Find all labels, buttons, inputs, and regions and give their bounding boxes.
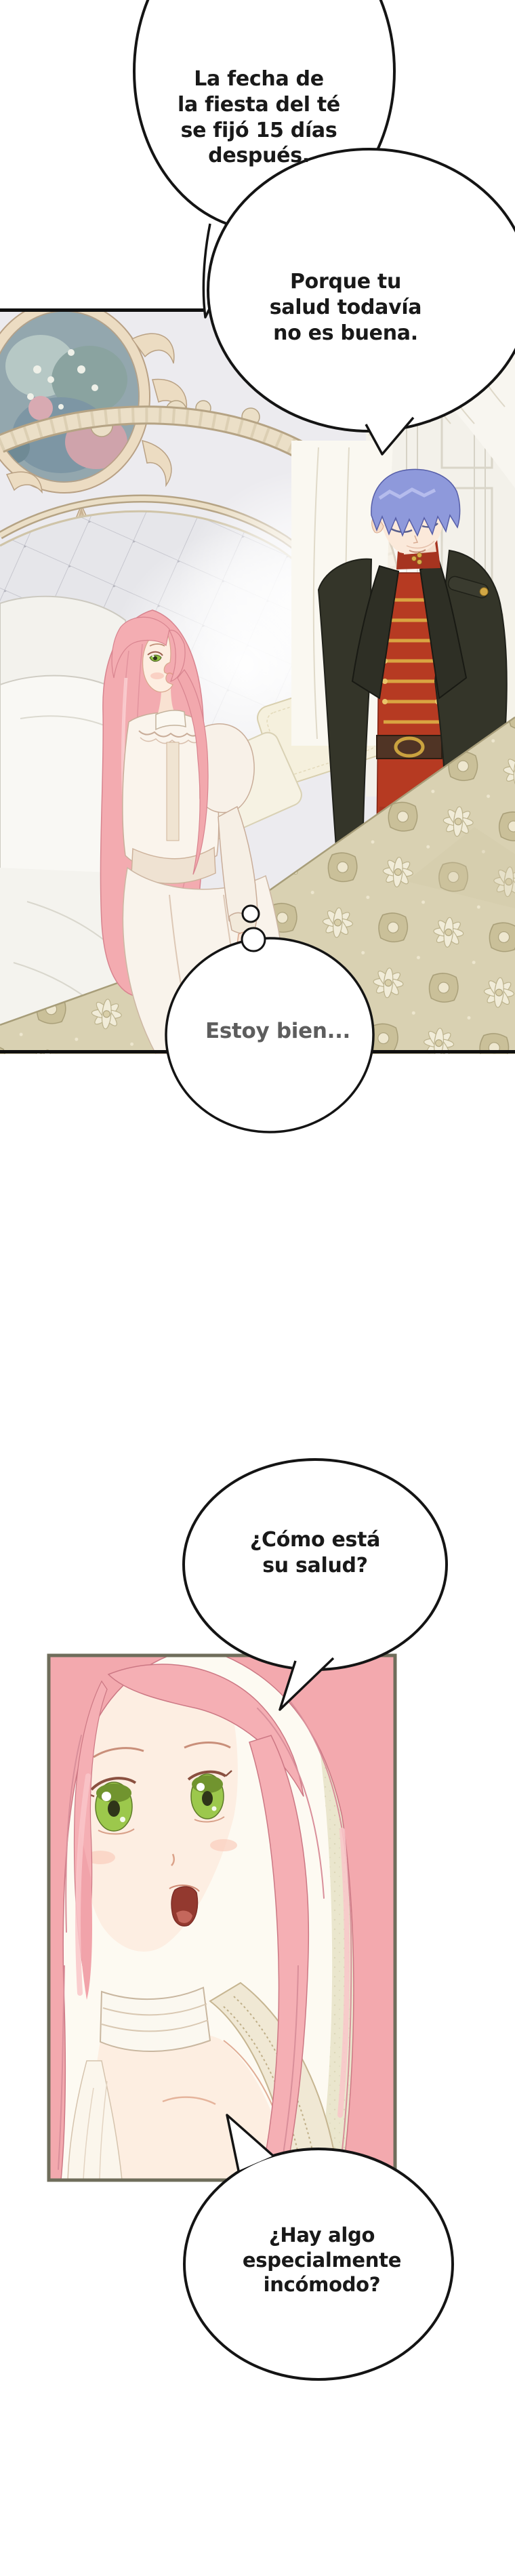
thought-dot-small — [243, 906, 259, 922]
panel-closeup — [47, 1655, 395, 2180]
speech-bubble-5-text: ¿Hay algo especialmente incómodo? — [210, 2223, 434, 2297]
speech-bubble-2-text: Porque tu salud todavía no es buena. — [261, 269, 430, 346]
thought-dot-large — [242, 928, 265, 951]
comic-art — [0, 0, 515, 2576]
speech-bubble-1-text: La fecha de la fiesta del té se fijó 15 … — [150, 66, 367, 169]
blush-right — [210, 1839, 237, 1851]
comic-page: La fecha de la fiesta del té se fijó 15 … — [0, 0, 515, 2576]
speech-bubble-4-text: ¿Cómo está su salud? — [227, 1527, 403, 1579]
thought-bubble-text: Estoy bien... — [190, 1018, 366, 1045]
